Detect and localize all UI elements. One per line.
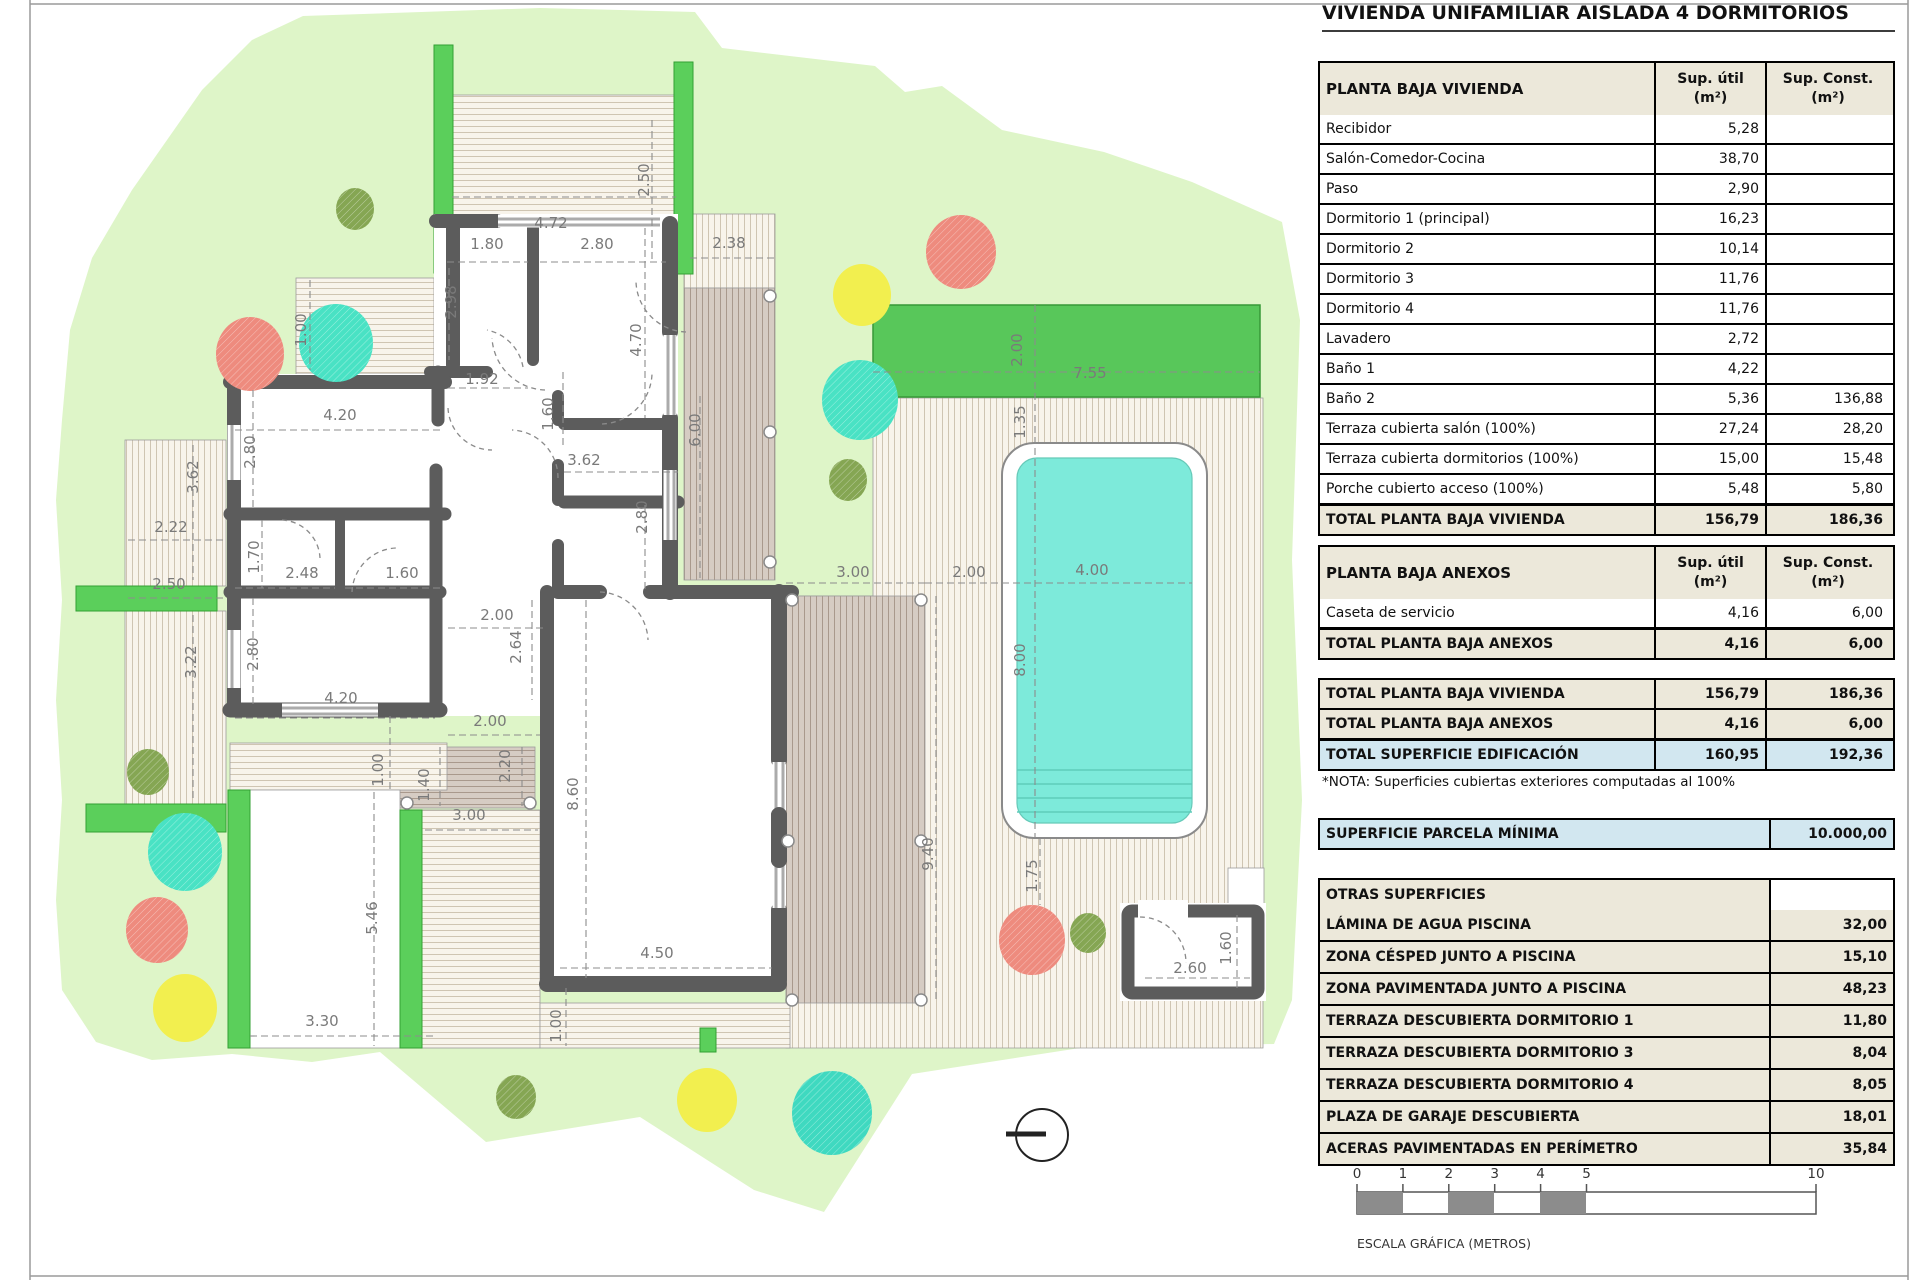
room-label: Caseta de servicio <box>1320 599 1656 627</box>
sup-util-value: 5,48 <box>1656 475 1767 503</box>
dimension-label: 3.00 <box>836 563 869 581</box>
dimension-label: 3.00 <box>452 806 485 824</box>
table-header: PLANTA BAJA VIVIENDA Sup. útil(m²) Sup. … <box>1320 63 1893 115</box>
table-row: TOTAL PLANTA BAJA ANEXOS 4,16 6,00 <box>1320 708 1893 738</box>
scale-tick-label: 0 <box>1353 1166 1362 1182</box>
dimension-label: 4.20 <box>323 406 356 424</box>
tree-icon <box>792 1071 872 1155</box>
room-label: Dormitorio 2 <box>1320 235 1656 263</box>
table-planta-baja-anexos: PLANTA BAJA ANEXOS Sup. útil(m²) Sup. Co… <box>1318 545 1895 660</box>
scale-bar: 01234510 ESCALA GRÁFICA (METROS) <box>1353 1166 1825 1251</box>
dimension-label: 2.20 <box>496 749 514 782</box>
surface-label: TERRAZA DESCUBIERTA DORMITORIO 1 <box>1320 1006 1771 1036</box>
dimension-label: 4.72 <box>534 214 567 232</box>
tree-icon <box>153 974 217 1042</box>
surface-label: ZONA CÉSPED JUNTO A PISCINA <box>1320 942 1771 972</box>
sup-const-value <box>1767 355 1889 383</box>
tree-icon <box>126 897 188 963</box>
table-row: TERRAZA DESCUBIERTA DORMITORIO 48,05 <box>1320 1068 1893 1100</box>
dimension-label: 2.48 <box>285 564 318 582</box>
sup-const-value: 5,80 <box>1767 475 1889 503</box>
north-symbol <box>1006 1109 1068 1161</box>
sup-const-value: 15,48 <box>1767 445 1889 473</box>
sup-util-value: 11,76 <box>1656 295 1767 323</box>
sup-util-value: 10,14 <box>1656 235 1767 263</box>
sup-const-value <box>1767 235 1889 263</box>
sup-const-value <box>1767 205 1889 233</box>
dimension-label: 4.70 <box>627 323 645 356</box>
dimension-label: 6.00 <box>686 413 704 446</box>
surface-value: 48,23 <box>1771 974 1893 1004</box>
dimension-label: 4.20 <box>324 689 357 707</box>
dimension-label: 2.64 <box>507 630 525 663</box>
dimension-label: 3.30 <box>305 1012 338 1030</box>
dimension-label: 9.40 <box>919 837 937 870</box>
table-row-total: TOTAL PLANTA BAJA ANEXOS 4,16 6,00 <box>1320 627 1893 658</box>
deck-top <box>452 95 676 218</box>
dimension-label: 4.50 <box>640 944 673 962</box>
sup-const-value: 6,00 <box>1767 599 1889 627</box>
dimension-label: 1.60 <box>539 397 557 430</box>
sup-util-value: 2,72 <box>1656 325 1767 353</box>
table-row: ACERAS PAVIMENTADAS EN PERÍMETRO35,84 <box>1320 1132 1893 1164</box>
dimension-label: 1.75 <box>1023 859 1041 892</box>
scale-tick-label: 1 <box>1399 1166 1408 1182</box>
dimension-label: 2.00 <box>952 563 985 581</box>
sup-const-value: 136,88 <box>1767 385 1889 413</box>
tree-icon <box>926 215 996 289</box>
sup-util-value: 27,24 <box>1656 415 1767 443</box>
surface-value: 35,84 <box>1771 1134 1893 1164</box>
scale-ticks: 01234510 <box>1353 1166 1825 1192</box>
surface-value: 11,80 <box>1771 1006 1893 1036</box>
tree-icon <box>833 264 891 326</box>
surface-value: 32,00 <box>1771 910 1893 940</box>
table-row: PLAZA DE GARAJE DESCUBIERTA18,01 <box>1320 1100 1893 1132</box>
table-row: Dormitorio 210,14 <box>1320 233 1893 263</box>
tree-icon <box>127 749 169 795</box>
table-header-label: PLANTA BAJA VIVIENDA <box>1320 63 1656 115</box>
dimension-label: 2.80 <box>580 235 613 253</box>
dimension-label: 1.80 <box>470 235 503 253</box>
drawing-sheet: { "title": "VIVIENDA UNIFAMILIAR AISLADA… <box>0 0 1920 1280</box>
tree-icon <box>336 188 374 230</box>
col-sup-util: Sup. útil <box>1677 70 1744 89</box>
table-header-label: PLANTA BAJA ANEXOS <box>1320 547 1656 599</box>
tree-icon <box>829 459 867 501</box>
dimension-label: 2.00 <box>1008 333 1026 366</box>
table-row: Porche cubierto acceso (100%)5,485,80 <box>1320 473 1893 503</box>
room-label: Salón-Comedor-Cocina <box>1320 145 1656 173</box>
dimension-label: 3.62 <box>567 451 600 469</box>
tree-icon <box>999 905 1065 975</box>
scale-tick-label: 5 <box>1582 1166 1591 1182</box>
dimension-label: 1.60 <box>1217 931 1235 964</box>
scale-tick-label: 3 <box>1490 1166 1499 1182</box>
table-row: Dormitorio 411,76 <box>1320 293 1893 323</box>
table-row-total-edificacion: TOTAL SUPERFICIE EDIFICACIÓN 160,95 192,… <box>1320 738 1893 769</box>
tree-icon <box>216 317 284 391</box>
deck-notch <box>1228 868 1264 908</box>
surface-label: ACERAS PAVIMENTADAS EN PERÍMETRO <box>1320 1134 1771 1164</box>
sup-const-value: 28,20 <box>1767 415 1889 443</box>
dimension-label: 1.35 <box>1011 405 1029 438</box>
sup-util-value: 15,00 <box>1656 445 1767 473</box>
scale-tick-label: 2 <box>1445 1166 1454 1182</box>
dimension-label: 1.70 <box>245 540 263 573</box>
table-row: TERRAZA DESCUBIERTA DORMITORIO 111,80 <box>1320 1004 1893 1036</box>
dimension-label: 5.46 <box>363 901 381 934</box>
sup-util-value: 4,16 <box>1656 599 1767 627</box>
dimension-label: 7.55 <box>1073 364 1106 382</box>
deck-salon-sur <box>540 1003 790 1048</box>
sup-util-value: 11,76 <box>1656 265 1767 293</box>
tree-icon <box>1070 913 1106 953</box>
table-row: Baño 25,36136,88 <box>1320 383 1893 413</box>
dimension-label: 2.80 <box>633 500 651 533</box>
nota-text: *NOTA: Superficies cubiertas exteriores … <box>1322 774 1895 790</box>
surface-label: TERRAZA DESCUBIERTA DORMITORIO 3 <box>1320 1038 1771 1068</box>
table-row: Dormitorio 1 (principal)16,23 <box>1320 203 1893 233</box>
dimension-label: 2.22 <box>154 518 187 536</box>
dimension-label: 2.50 <box>152 575 185 593</box>
room-label: Terraza cubierta salón (100%) <box>1320 415 1656 443</box>
scale-tick-label: 4 <box>1536 1166 1545 1182</box>
sup-const-value <box>1767 175 1889 203</box>
dimension-label: 2.80 <box>241 435 259 468</box>
tree-icon <box>677 1068 737 1132</box>
table-row: TOTAL PLANTA BAJA VIVIENDA 156,79 186,36 <box>1320 680 1893 708</box>
dimension-label: 1.00 <box>547 1009 565 1042</box>
caseta-servicio <box>1120 900 1266 1001</box>
surface-label: ZONA PAVIMENTADA JUNTO A PISCINA <box>1320 974 1771 1004</box>
dimension-label: 3.22 <box>182 645 200 678</box>
dimension-label: 8.60 <box>564 777 582 810</box>
dimension-label: 2.50 <box>635 163 653 196</box>
table-row: Dormitorio 311,76 <box>1320 263 1893 293</box>
col-sup-const: Sup. Const. <box>1783 70 1873 89</box>
dimension-label: 4.00 <box>1075 561 1108 579</box>
table-row: Terraza cubierta dormitorios (100%)15,00… <box>1320 443 1893 473</box>
table-row: Terraza cubierta salón (100%)27,2428,20 <box>1320 413 1893 443</box>
dimension-label: 2.98 <box>442 285 460 318</box>
table-row: TERRAZA DESCUBIERTA DORMITORIO 38,04 <box>1320 1036 1893 1068</box>
table-row: Recibidor5,28 <box>1320 115 1893 143</box>
room-label: Recibidor <box>1320 115 1656 143</box>
terraza-cubierta-salon <box>786 596 925 1003</box>
sup-const-value <box>1767 295 1889 323</box>
sup-util-value: 2,90 <box>1656 175 1767 203</box>
page-title: VIVIENDA UNIFAMILIAR AISLADA 4 DORMITORI… <box>1322 2 1895 32</box>
table-row: Baño 14,22 <box>1320 353 1893 383</box>
table-header: OTRAS SUPERFICIES <box>1320 880 1893 910</box>
pergola <box>873 305 1260 397</box>
table-row: Caseta de servicio4,166,00 <box>1320 599 1893 627</box>
table-totales: TOTAL PLANTA BAJA VIVIENDA 156,79 186,36… <box>1318 678 1895 771</box>
deck-bottom-left <box>422 810 540 1048</box>
table-row: ZONA CÉSPED JUNTO A PISCINA15,10 <box>1320 940 1893 972</box>
dimension-label: 1.40 <box>415 768 433 801</box>
sup-util-value: 5,28 <box>1656 115 1767 143</box>
dimension-label: 2.38 <box>712 234 745 252</box>
room-label: Lavadero <box>1320 325 1656 353</box>
surface-value: 8,04 <box>1771 1038 1893 1068</box>
surface-value: 15,10 <box>1771 942 1893 972</box>
room-label: Dormitorio 3 <box>1320 265 1656 293</box>
room-label: Porche cubierto acceso (100%) <box>1320 475 1656 503</box>
surface-label: LÁMINA DE AGUA PISCINA <box>1320 910 1771 940</box>
sup-const-value <box>1767 265 1889 293</box>
sup-const-value <box>1767 115 1889 143</box>
dimension-label: 1.92 <box>465 370 498 388</box>
surface-value: 18,01 <box>1771 1102 1893 1132</box>
surface-label: PLAZA DE GARAJE DESCUBIERTA <box>1320 1102 1771 1132</box>
dimension-label: 1.60 <box>385 564 418 582</box>
table-row: Paso2,90 <box>1320 173 1893 203</box>
swimming-pool <box>1002 443 1207 838</box>
dimension-label: 2.60 <box>1173 959 1206 977</box>
room-label: Baño 2 <box>1320 385 1656 413</box>
sup-const-value <box>1767 325 1889 353</box>
dimension-label: 2.00 <box>480 606 513 624</box>
room-label: Paso <box>1320 175 1656 203</box>
table-otras-superficies: OTRAS SUPERFICIES LÁMINA DE AGUA PISCINA… <box>1318 878 1895 1166</box>
room-label: Dormitorio 1 (principal) <box>1320 205 1656 233</box>
table-row: Salón-Comedor-Cocina38,70 <box>1320 143 1893 173</box>
surface-label: TERRAZA DESCUBIERTA DORMITORIO 4 <box>1320 1070 1771 1100</box>
dimension-label: 3.62 <box>184 460 202 493</box>
room-label: Dormitorio 4 <box>1320 295 1656 323</box>
table-planta-baja-vivienda: PLANTA BAJA VIVIENDA Sup. útil(m²) Sup. … <box>1318 61 1895 536</box>
dimension-label: 1.00 <box>369 753 387 786</box>
sup-const-value <box>1767 145 1889 173</box>
terraza-dormitorio-1 <box>125 440 226 586</box>
sup-util-value: 16,23 <box>1656 205 1767 233</box>
surface-value: 8,05 <box>1771 1070 1893 1100</box>
table-header: PLANTA BAJA ANEXOS Sup. útil(m²) Sup. Co… <box>1320 547 1893 599</box>
scale-tick-label: 10 <box>1807 1166 1824 1182</box>
room-label: Terraza cubierta dormitorios (100%) <box>1320 445 1656 473</box>
dimension-label: 1.00 <box>292 313 310 346</box>
dimension-label: 2.00 <box>473 712 506 730</box>
sup-util-value: 4,22 <box>1656 355 1767 383</box>
dimension-label: 8.00 <box>1011 643 1029 676</box>
table-row: ZONA PAVIMENTADA JUNTO A PISCINA48,23 <box>1320 972 1893 1004</box>
table-row: LÁMINA DE AGUA PISCINA32,00 <box>1320 910 1893 940</box>
tree-icon <box>496 1075 536 1119</box>
sup-util-value: 38,70 <box>1656 145 1767 173</box>
dimension-label: 2.80 <box>244 637 262 670</box>
tree-icon <box>148 813 222 891</box>
table-parcela-minima: SUPERFICIE PARCELA MÍNIMA 10.000,00 <box>1318 818 1895 850</box>
table-row: Lavadero2,72 <box>1320 323 1893 353</box>
sup-util-value: 5,36 <box>1656 385 1767 413</box>
scale-label: ESCALA GRÁFICA (METROS) <box>1357 1236 1531 1251</box>
room-label: Baño 1 <box>1320 355 1656 383</box>
table-row: SUPERFICIE PARCELA MÍNIMA 10.000,00 <box>1320 820 1893 848</box>
table-row-total: TOTAL PLANTA BAJA VIVIENDA 156,79 186,36 <box>1320 503 1893 534</box>
